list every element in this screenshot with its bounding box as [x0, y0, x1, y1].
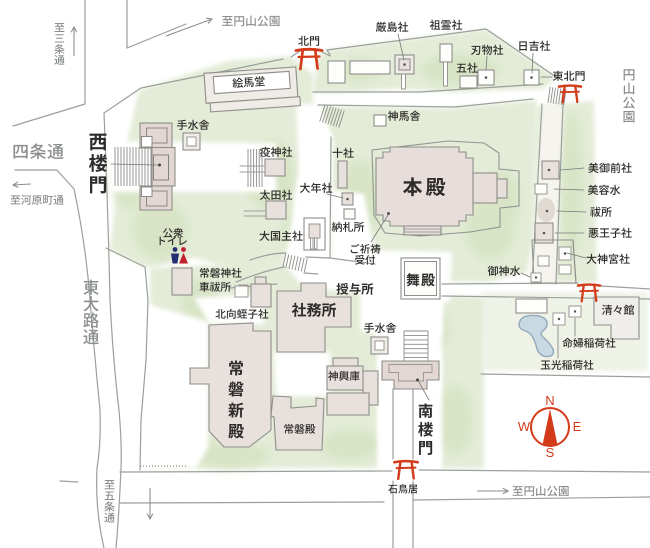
svg-text:E: E	[573, 419, 582, 434]
svg-text:N: N	[545, 393, 554, 408]
svg-text:S: S	[546, 445, 555, 460]
svg-text:W: W	[518, 419, 531, 434]
